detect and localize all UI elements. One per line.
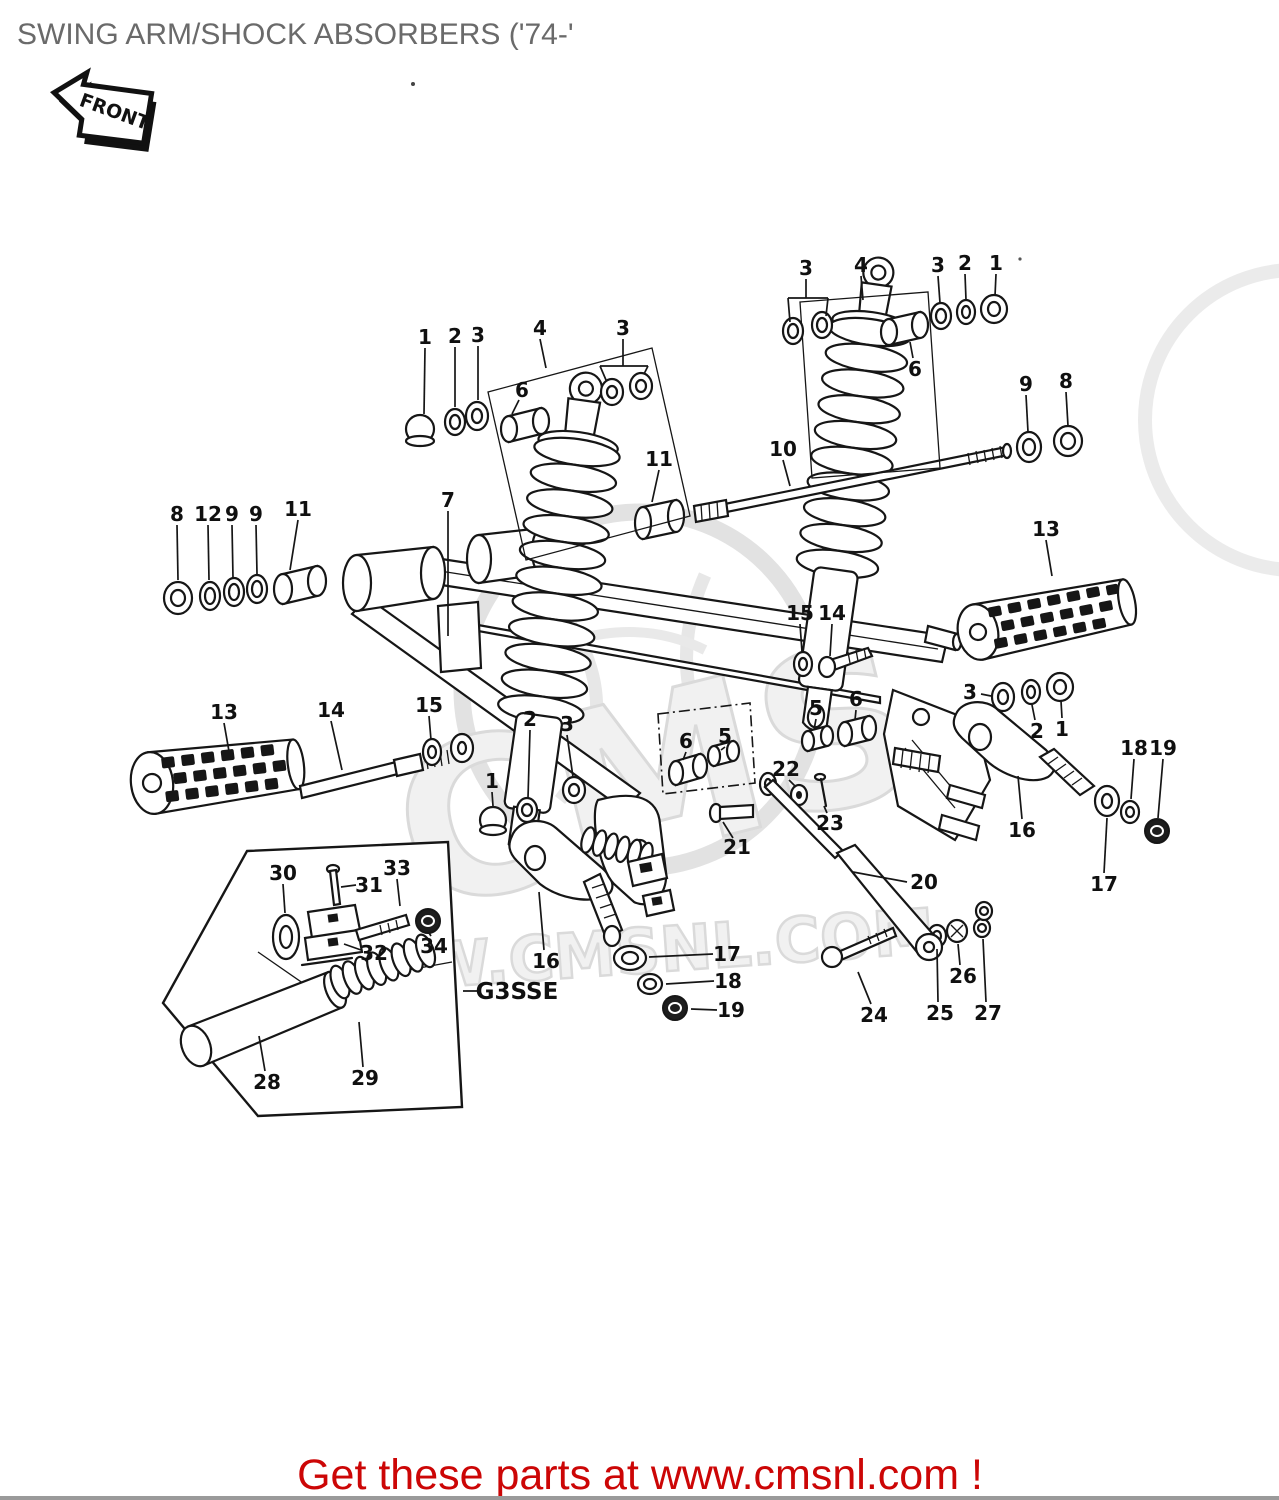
part-label: 24 — [860, 1003, 888, 1027]
leader-line — [512, 400, 519, 414]
leader-line — [937, 949, 938, 1002]
part-label: 26 — [949, 964, 977, 988]
leader-line — [424, 348, 425, 414]
part-label: 8 — [1059, 369, 1073, 393]
left-footpeg — [127, 734, 307, 817]
part-label: 14 — [818, 601, 846, 625]
leader-line — [910, 342, 913, 358]
part-label: 31 — [355, 873, 383, 897]
part-label: 13 — [210, 700, 238, 724]
parts-diagram: CMS WWW.CMSNL.COM SWING ARM/SHOCK ABSORB… — [0, 0, 1279, 1500]
part-label: 2 — [523, 707, 537, 731]
part-label: 2 — [448, 324, 462, 348]
right-footpeg — [953, 574, 1140, 663]
part-label: 28 — [253, 1070, 281, 1094]
part-label: 18 — [714, 969, 742, 993]
part-label: 15 — [786, 601, 814, 625]
leader-line — [981, 694, 991, 696]
part-label: 3 — [616, 316, 630, 340]
leader-line — [652, 470, 659, 502]
part-label: 34 — [420, 934, 448, 958]
leader-line — [256, 525, 257, 574]
leader-line — [177, 525, 178, 580]
leader-line — [1061, 701, 1062, 718]
leader-line — [965, 274, 966, 300]
leader-line — [208, 525, 209, 580]
part-label: 20 — [910, 870, 938, 894]
part-label: 6 — [849, 687, 863, 711]
part-label: 9 — [225, 502, 239, 526]
stray-dot-2 — [1018, 257, 1021, 260]
bottom-edge-bar — [0, 1496, 1279, 1500]
part-label: 1 — [1055, 717, 1069, 741]
leader-line — [938, 276, 940, 303]
part-label: 18 — [1120, 736, 1148, 760]
parts-page: CMS WWW.CMSNL.COM SWING ARM/SHOCK ABSORB… — [0, 0, 1279, 1500]
page-title: SWING ARM/SHOCK ABSORBERS ('74-' — [17, 18, 574, 51]
part-label: 19 — [717, 998, 745, 1022]
part-label: 6 — [679, 729, 693, 753]
part-label: 33 — [383, 856, 411, 880]
part-label: 25 — [926, 1001, 954, 1025]
part-label: 29 — [351, 1066, 379, 1090]
front-direction-badge: FRONT — [43, 66, 165, 162]
inset-footpeg-kit — [163, 842, 462, 1116]
part-label: 5 — [809, 696, 823, 720]
leader-line — [1131, 759, 1134, 799]
part-label: 23 — [816, 811, 844, 835]
part-label: 17 — [1090, 872, 1118, 896]
leader-line — [600, 366, 606, 380]
leader-line — [958, 944, 960, 965]
part-label: 16 — [1008, 818, 1036, 842]
leader-line — [1018, 776, 1022, 819]
part-label: 6 — [515, 378, 529, 402]
part-label: 2 — [958, 251, 972, 275]
part-label: 15 — [415, 693, 443, 717]
leader-line — [855, 710, 856, 720]
part-label: 17 — [713, 942, 741, 966]
part-label: 21 — [723, 835, 751, 859]
part-label: 1 — [485, 769, 499, 793]
part-label: 5 — [718, 724, 732, 748]
leader-line — [1026, 395, 1028, 432]
leader-line — [1104, 818, 1107, 873]
leader-line — [1158, 759, 1163, 818]
leader-line — [1046, 540, 1052, 576]
leader-line — [995, 274, 996, 296]
part-label: 3 — [963, 680, 977, 704]
part-label: 10 — [769, 437, 797, 461]
leader-line — [691, 1009, 717, 1010]
part-label: 2 — [1030, 719, 1044, 743]
part-label: 22 — [772, 757, 800, 781]
leader-line — [492, 792, 493, 806]
part-label: 7 — [441, 488, 455, 512]
part-label: 11 — [284, 497, 312, 521]
footer-banner-text: Get these parts at www.cmsnl.com ! — [297, 1451, 983, 1499]
part-label: 3 — [931, 253, 945, 277]
part-label: 11 — [645, 447, 673, 471]
leader-line — [858, 972, 871, 1004]
part-label: 3 — [560, 712, 574, 736]
part-label: 13 — [1032, 517, 1060, 541]
leader-line — [783, 460, 790, 486]
part-label: 32 — [360, 941, 388, 965]
part-label: 9 — [249, 502, 263, 526]
part-label: 9 — [1019, 372, 1033, 396]
part-label: 8 — [170, 502, 184, 526]
part-label: 1 — [418, 325, 432, 349]
part-label: 3 — [471, 323, 485, 347]
part-label: 19 — [1149, 736, 1177, 760]
stray-dot — [411, 82, 415, 86]
leader-line — [1066, 392, 1068, 426]
part-label: 4 — [533, 316, 547, 340]
leader-line — [331, 721, 342, 770]
part-label: 4 — [854, 253, 868, 277]
leader-line — [644, 366, 648, 374]
leader-line — [540, 339, 546, 368]
part-label: 12 — [194, 502, 222, 526]
part-label: 3 — [799, 256, 813, 280]
leader-line — [232, 525, 233, 578]
part-label: 16 — [532, 949, 560, 973]
leader-line — [290, 520, 298, 570]
part-label: 6 — [908, 357, 922, 381]
pivot-shaft-parts-left — [164, 566, 326, 614]
part-label: 1 — [989, 251, 1003, 275]
leader-line — [1032, 705, 1035, 720]
leader-line — [983, 939, 986, 1002]
part-label: G3SSE — [476, 979, 559, 1005]
part-label: 14 — [317, 698, 345, 722]
part-label: 27 — [974, 1001, 1002, 1025]
part-label: 30 — [269, 861, 297, 885]
